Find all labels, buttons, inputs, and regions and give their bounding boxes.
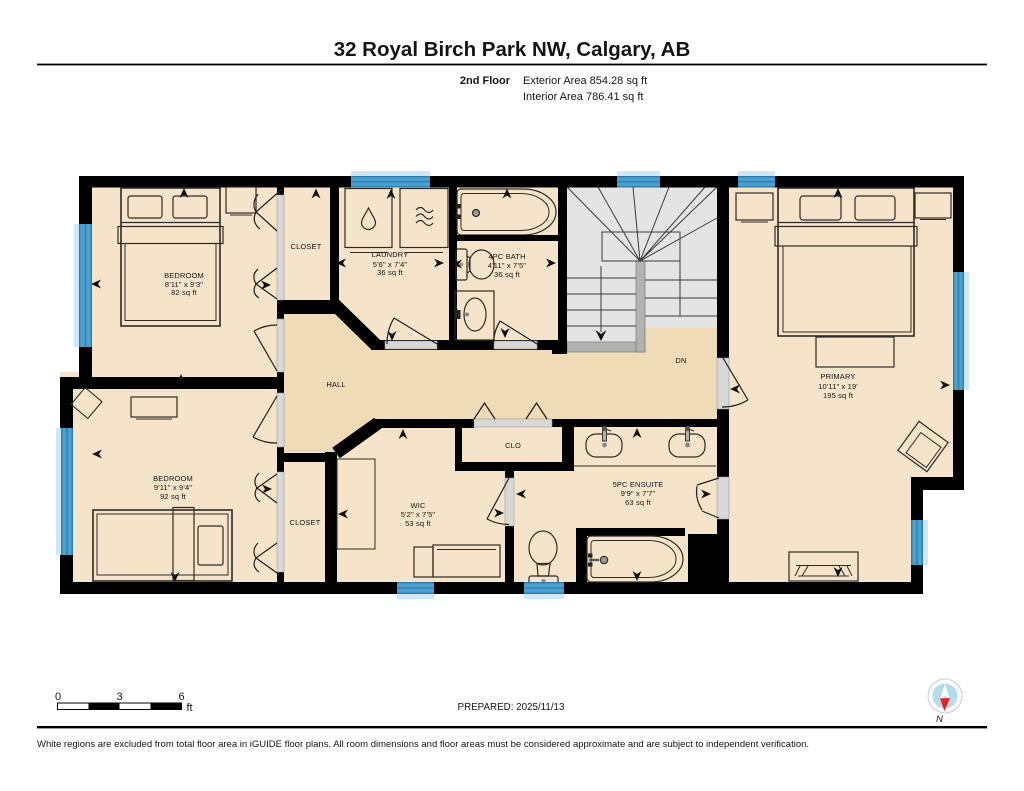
- svg-text:63 sq ft: 63 sq ft: [625, 498, 652, 507]
- svg-text:10'11" x 19': 10'11" x 19': [818, 382, 858, 391]
- svg-text:92 sq ft: 92 sq ft: [160, 492, 187, 501]
- svg-text:195 sq ft: 195 sq ft: [823, 391, 854, 400]
- svg-text:9'9" x 7'7": 9'9" x 7'7": [621, 489, 656, 498]
- svg-text:White regions are excluded fro: White regions are excluded from total fl…: [37, 739, 809, 750]
- svg-text:CLOSET: CLOSET: [291, 242, 322, 251]
- svg-text:BEDROOM: BEDROOM: [164, 271, 204, 280]
- svg-text:LAUNDRY: LAUNDRY: [372, 250, 409, 259]
- svg-text:BEDROOM: BEDROOM: [153, 474, 193, 483]
- svg-text:0: 0: [55, 691, 61, 703]
- svg-text:32 Royal Birch Park NW, Calgar: 32 Royal Birch Park NW, Calgary, AB: [334, 38, 691, 61]
- svg-text:3: 3: [116, 691, 122, 703]
- svg-text:2nd Floor: 2nd Floor: [460, 75, 511, 87]
- svg-text:4'11" x 7'5": 4'11" x 7'5": [488, 261, 526, 270]
- svg-text:CLO: CLO: [505, 441, 521, 450]
- svg-text:5'2" x 7'5": 5'2" x 7'5": [401, 510, 436, 519]
- svg-text:5PC ENSUITE: 5PC ENSUITE: [613, 480, 664, 489]
- svg-text:82 sq ft: 82 sq ft: [171, 288, 198, 297]
- svg-text:Interior Area 786.41 sq ft: Interior Area 786.41 sq ft: [523, 91, 643, 103]
- svg-text:36 sq ft: 36 sq ft: [377, 268, 404, 277]
- svg-text:CLOSET: CLOSET: [290, 518, 321, 527]
- svg-text:36 sq ft: 36 sq ft: [494, 270, 521, 279]
- svg-text:53 sq ft: 53 sq ft: [405, 519, 432, 528]
- svg-text:9'11" x 9'4": 9'11" x 9'4": [154, 483, 192, 492]
- svg-text:PREPARED: 2025/11/13: PREPARED: 2025/11/13: [458, 702, 565, 713]
- svg-text:6: 6: [178, 691, 184, 703]
- svg-text:HALL: HALL: [326, 380, 345, 389]
- svg-text:4PC BATH: 4PC BATH: [488, 252, 525, 261]
- svg-text:N: N: [936, 714, 943, 725]
- svg-text:DN: DN: [675, 356, 686, 365]
- svg-text:PRIMARY: PRIMARY: [820, 372, 855, 381]
- svg-text:ft: ft: [187, 702, 193, 714]
- svg-text:Exterior Area 854.28 sq ft: Exterior Area 854.28 sq ft: [523, 75, 647, 87]
- svg-text:WIC: WIC: [410, 501, 425, 510]
